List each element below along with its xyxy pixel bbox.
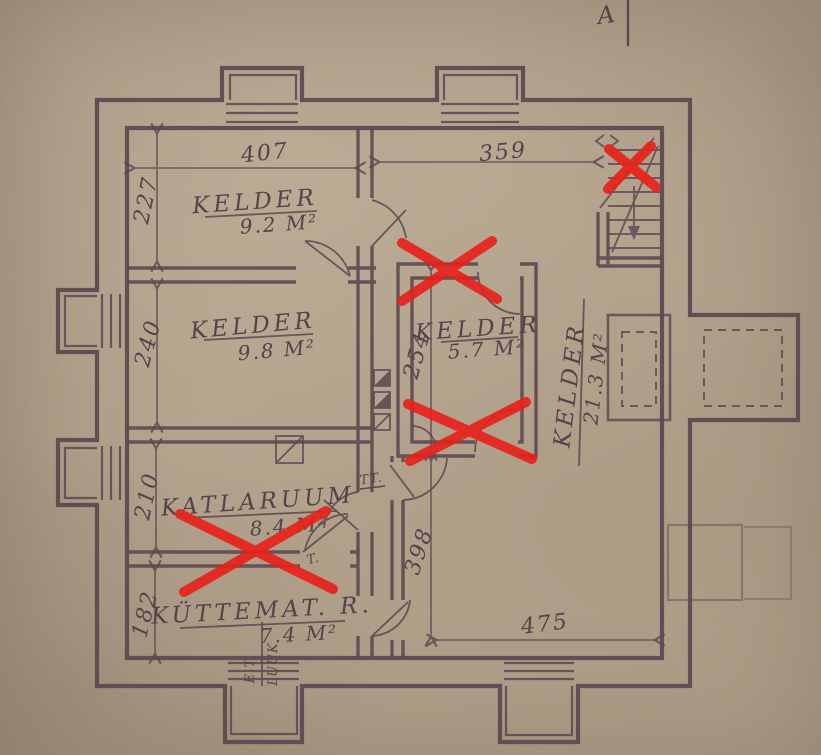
stair-arrow-head — [628, 226, 640, 240]
wall-b — [127, 428, 372, 442]
window-top-right — [441, 75, 519, 122]
door-kuttemat — [372, 600, 410, 636]
dim-227: 227 — [129, 174, 164, 227]
note-et: E.T. — [243, 655, 258, 685]
note-t: T. — [305, 551, 321, 569]
dim-398: 398 — [400, 524, 439, 577]
note-luuk: LUUK — [266, 642, 281, 687]
wall-a — [127, 268, 376, 282]
note-tt: TT. — [359, 470, 384, 488]
vent-fill-1 — [374, 370, 390, 386]
sheet-mark-group: A — [593, 0, 628, 46]
door-kelder-92 — [305, 241, 350, 276]
dim-407: 407 — [239, 139, 290, 169]
vent-diag-3 — [374, 414, 390, 430]
window-left-lower — [65, 446, 120, 500]
scanned-floor-plan-sheet: A — [0, 0, 821, 755]
window-top-left — [226, 75, 298, 122]
pencil-bay-faint-ext — [744, 527, 791, 599]
dim-240: 240 — [130, 317, 167, 371]
sheet-mark-a: A — [593, 0, 616, 30]
outer-wall-line — [58, 68, 798, 742]
vent-fill-2 — [374, 392, 390, 408]
light-well-outer-dashed — [704, 330, 782, 406]
light-well-inner-dashed — [622, 332, 656, 406]
room-labels: KELDER 9.2 M² KELDER 9.8 M² KELDER 5.7 M… — [150, 185, 614, 648]
window-bottom-right — [504, 663, 574, 735]
door-hall-mid — [390, 458, 447, 500]
hatch-bay-bottom-left — [228, 663, 299, 734]
pencil-bay-rect — [668, 525, 742, 600]
window-left-upper — [65, 294, 120, 348]
floor-plan-canvas: A — [0, 0, 821, 755]
light-wells — [608, 315, 782, 420]
red-x-upper-center — [402, 241, 497, 301]
exterior-walls — [58, 68, 798, 742]
dim-359: 359 — [478, 138, 528, 167]
chimney-diagonal — [276, 436, 303, 463]
pencil-bay — [668, 525, 791, 600]
dim-475: 475 — [519, 609, 571, 640]
wall-vertical — [358, 128, 372, 658]
